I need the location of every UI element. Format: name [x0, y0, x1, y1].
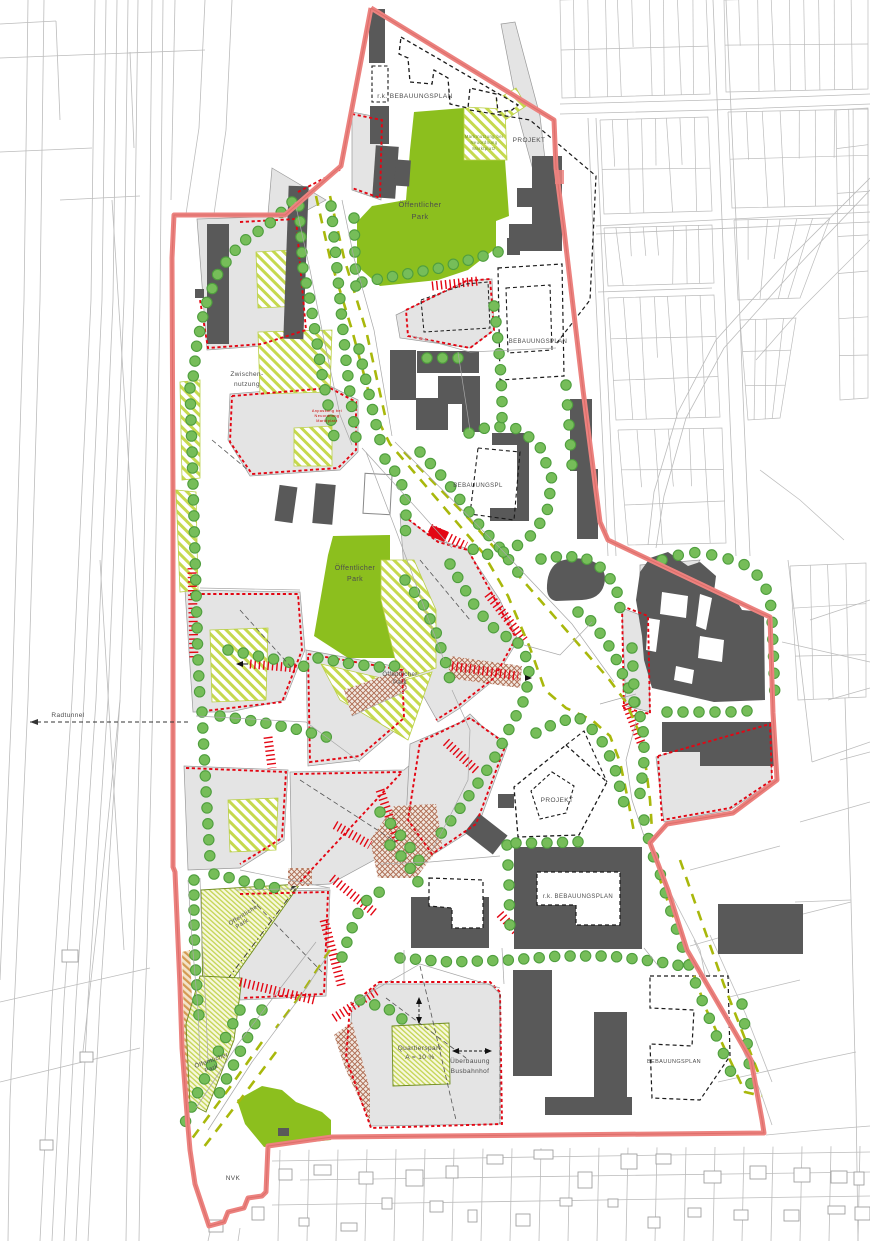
svg-text:r.k. BEBAUUNGSPLAN: r.k. BEBAUUNGSPLAN: [377, 93, 452, 100]
svg-text:Quartierspark: Quartierspark: [398, 1045, 443, 1052]
svg-text:PROJEKT: PROJEKT: [513, 137, 546, 144]
svg-text:Marktplatz: Marktplatz: [316, 419, 338, 423]
svg-text:Öffentlicher: Öffentlicher: [382, 671, 417, 678]
svg-text:BEBAUUNGSPL: BEBAUUNGSPL: [453, 483, 503, 489]
svg-text:BEBAUUNGSPLAN: BEBAUUNGSPLAN: [647, 1059, 701, 1065]
svg-text:Öffentlicher: Öffentlicher: [398, 200, 441, 209]
svg-text:Busbahnhof: Busbahnhof: [451, 1068, 490, 1075]
svg-text:Neuordnung: Neuordnung: [470, 140, 497, 145]
svg-text:Zwischen-: Zwischen-: [230, 371, 263, 378]
svg-text:Park: Park: [411, 212, 428, 221]
svg-text:Radtunnel: Radtunnel: [51, 712, 84, 719]
svg-text:PROJEKT: PROJEKT: [541, 797, 574, 804]
svg-text:nutzung: nutzung: [234, 381, 260, 388]
svg-text:Marktplatz: Marktplatz: [472, 146, 495, 151]
svg-text:Marktnutzung bei: Marktnutzung bei: [465, 134, 504, 139]
svg-text:r.k. BEBAUUNGSPLAN: r.k. BEBAUUNGSPLAN: [543, 894, 613, 900]
svg-text:NVK: NVK: [226, 1175, 241, 1182]
svg-text:Überbauung: Überbauung: [450, 1057, 490, 1065]
svg-text:Anpassung bei: Anpassung bei: [312, 409, 342, 413]
svg-text:Park: Park: [347, 576, 363, 583]
svg-text:Öffentlicher: Öffentlicher: [335, 564, 376, 572]
svg-text:A = 10 %: A = 10 %: [405, 1054, 434, 1061]
svg-text:BEBAUUNGSPLAN: BEBAUUNGSPLAN: [509, 339, 568, 345]
svg-text:Park: Park: [393, 680, 408, 686]
svg-text:Neuordnung: Neuordnung: [315, 414, 340, 418]
